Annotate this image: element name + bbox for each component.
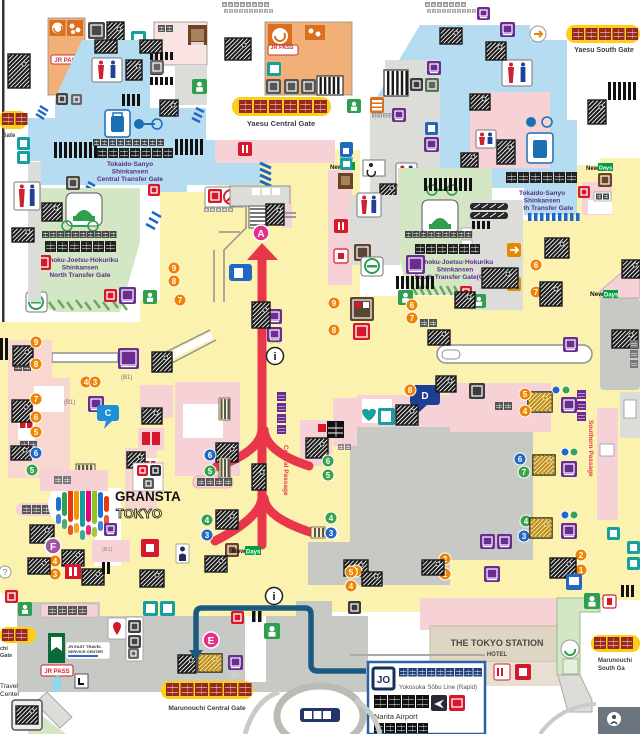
svg-text:3: 3 xyxy=(93,378,98,387)
svg-text:1: 1 xyxy=(579,566,584,575)
svg-text:A: A xyxy=(257,229,264,240)
svg-text:(B1): (B1) xyxy=(270,339,281,345)
svg-text:North Transfer Gate: North Transfer Gate xyxy=(49,272,110,279)
svg-text:JO: JO xyxy=(377,675,391,686)
svg-text:8: 8 xyxy=(172,277,177,286)
svg-text:3: 3 xyxy=(329,529,334,538)
svg-text:Gate: Gate xyxy=(0,653,12,659)
svg-text:THE TOKYO STATION: THE TOKYO STATION xyxy=(450,638,543,648)
svg-text:New: New xyxy=(590,291,604,298)
svg-text:(B1): (B1) xyxy=(102,547,113,553)
svg-text:3: 3 xyxy=(522,532,527,541)
svg-text:JR PASS: JR PASS xyxy=(270,45,293,51)
svg-text:4: 4 xyxy=(329,514,334,523)
svg-text:Tokaido·Sanyo: Tokaido·Sanyo xyxy=(519,190,565,197)
svg-text:New: New xyxy=(232,548,246,555)
svg-text:5: 5 xyxy=(208,467,213,476)
svg-text:(B1): (B1) xyxy=(121,375,132,381)
svg-text:Narita Airport: Narita Airport xyxy=(374,712,419,721)
svg-text:Shinkansen: Shinkansen xyxy=(524,198,561,205)
svg-text:3: 3 xyxy=(205,531,210,540)
svg-text:Yokosuka Sōbu Line (Rapid): Yokosuka Sōbu Line (Rapid) xyxy=(399,684,477,691)
svg-text:7: 7 xyxy=(178,296,183,305)
svg-text:4: 4 xyxy=(205,516,210,525)
svg-text:Tohoku·Joetsu·Hokuriku: Tohoku·Joetsu·Hokuriku xyxy=(42,257,118,264)
svg-text:8: 8 xyxy=(34,360,39,369)
svg-text:chi: chi xyxy=(0,646,8,652)
svg-text:7: 7 xyxy=(522,468,527,477)
svg-text:SERVICE CENTER: SERVICE CENTER xyxy=(68,649,103,654)
svg-text:4: 4 xyxy=(524,517,529,526)
svg-text:6: 6 xyxy=(518,455,523,464)
svg-text:4: 4 xyxy=(349,582,354,591)
svg-text:Center: Center xyxy=(0,691,20,698)
svg-text:6: 6 xyxy=(326,457,331,466)
svg-text:6: 6 xyxy=(534,261,539,270)
svg-text:E: E xyxy=(208,636,215,647)
svg-text:8: 8 xyxy=(332,326,337,335)
svg-text:Days: Days xyxy=(604,293,619,299)
svg-text:Travel: Travel xyxy=(0,683,18,690)
svg-text:South Ga: South Ga xyxy=(598,666,625,672)
svg-text:Yaesu Central Gate: Yaesu Central Gate xyxy=(247,119,315,128)
svg-text:3: 3 xyxy=(53,570,58,579)
svg-text:Shinkansen: Shinkansen xyxy=(62,265,99,272)
svg-text:Tokaido·Sanyo: Tokaido·Sanyo xyxy=(107,161,153,168)
svg-text:i: i xyxy=(273,351,276,363)
svg-text:D: D xyxy=(421,391,428,402)
svg-text:6: 6 xyxy=(208,451,213,460)
svg-text:Central Passage: Central Passage xyxy=(282,445,289,496)
svg-text:(B1): (B1) xyxy=(230,673,240,679)
svg-text:9: 9 xyxy=(34,338,39,347)
svg-text:F: F xyxy=(50,542,56,553)
svg-text:i: i xyxy=(272,591,275,603)
svg-text:Days: Days xyxy=(599,166,612,172)
svg-text:C: C xyxy=(105,408,112,418)
svg-text:Tohoku·Joetsu·Hokuriku: Tohoku·Joetsu·Hokuriku xyxy=(417,259,493,266)
svg-text:Central Transfer Gate: Central Transfer Gate xyxy=(97,176,163,183)
svg-text:7: 7 xyxy=(34,395,39,404)
svg-text:5: 5 xyxy=(30,466,35,475)
svg-text:5: 5 xyxy=(34,428,39,437)
svg-text:9: 9 xyxy=(332,299,337,308)
svg-text:Days: Days xyxy=(246,550,261,556)
svg-text:Shinkansen: Shinkansen xyxy=(437,267,474,274)
svg-text:(B1): (B1) xyxy=(64,400,75,406)
svg-text:7: 7 xyxy=(534,288,539,297)
svg-text:9: 9 xyxy=(172,264,177,273)
svg-text:4: 4 xyxy=(53,557,58,566)
svg-text:?: ? xyxy=(3,568,8,577)
svg-text:JR PASS: JR PASS xyxy=(44,669,69,675)
svg-text:Shinkansen: Shinkansen xyxy=(112,169,149,176)
svg-text:5: 5 xyxy=(349,568,354,577)
svg-text:7: 7 xyxy=(410,314,415,323)
svg-text:Marunouchi Central Gate: Marunouchi Central Gate xyxy=(168,705,246,712)
svg-text:HOTEL: HOTEL xyxy=(487,652,508,658)
svg-text:New: New xyxy=(586,166,599,172)
svg-text:Southern Passage: Southern Passage xyxy=(587,420,594,477)
svg-text:6: 6 xyxy=(34,413,39,422)
svg-text:TOKYO: TOKYO xyxy=(116,506,162,521)
svg-text:Gate: Gate xyxy=(2,133,16,139)
svg-text:Yaesu South Gate: Yaesu South Gate xyxy=(574,47,634,54)
svg-text:4: 4 xyxy=(84,378,89,387)
svg-text:Marunouchi: Marunouchi xyxy=(598,658,632,664)
svg-text:6: 6 xyxy=(34,449,39,458)
svg-text:8: 8 xyxy=(408,386,413,395)
svg-text:2: 2 xyxy=(579,551,584,560)
svg-text:5: 5 xyxy=(523,390,528,399)
svg-text:6: 6 xyxy=(410,301,415,310)
svg-text:5: 5 xyxy=(326,471,331,480)
svg-text:4: 4 xyxy=(523,407,528,416)
